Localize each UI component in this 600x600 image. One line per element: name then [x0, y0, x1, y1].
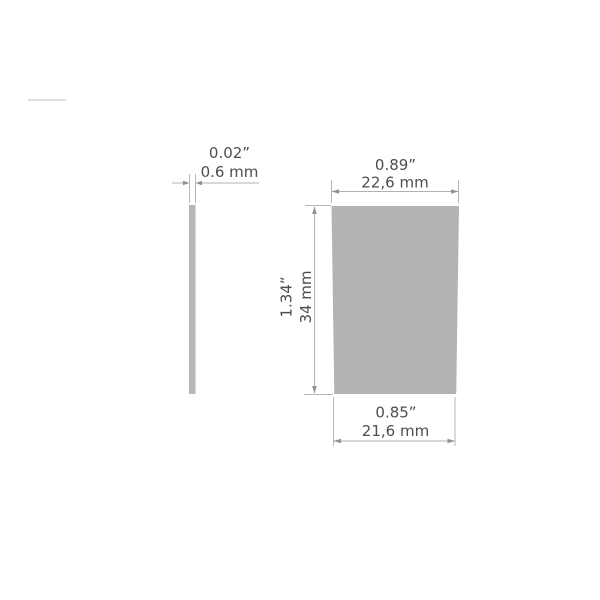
top-width-arrow-right-icon: [451, 189, 459, 193]
height-inch-label: 1.34”: [278, 276, 296, 317]
bottom-width-mm-label: 21,6 mm: [362, 422, 429, 440]
dimension-drawing-canvas: 0.02” 0.6 mm 0.89” 22,6 mm 1.34” 34 mm: [0, 0, 600, 600]
dimension-drawing-svg: 0.02” 0.6 mm 0.89” 22,6 mm 1.34” 34 mm: [0, 0, 600, 600]
front-view: 0.89” 22,6 mm 1.34” 34 mm 0.85” 21,6 mm: [278, 156, 460, 446]
bottom-width-arrow-right-icon: [448, 439, 456, 443]
top-width-inch-label: 0.89”: [375, 156, 416, 174]
height-arrow-bottom-icon: [312, 386, 317, 394]
side-view-plate: [189, 205, 196, 394]
bottom-width-inch-label: 0.85”: [375, 404, 416, 422]
height-arrow-top-icon: [312, 207, 317, 215]
height-mm-label: 34 mm: [297, 270, 315, 323]
top-width-arrow-left-icon: [332, 189, 340, 193]
thickness-arrow-right-icon: [196, 181, 203, 186]
front-view-plate: [332, 206, 460, 394]
side-view: 0.02” 0.6 mm: [172, 144, 259, 394]
thickness-inch-label: 0.02”: [209, 144, 250, 162]
top-width-mm-label: 22,6 mm: [361, 174, 428, 192]
thickness-mm-label: 0.6 mm: [201, 163, 259, 181]
bottom-width-arrow-left-icon: [334, 439, 342, 443]
thickness-arrow-left-icon: [183, 181, 190, 186]
